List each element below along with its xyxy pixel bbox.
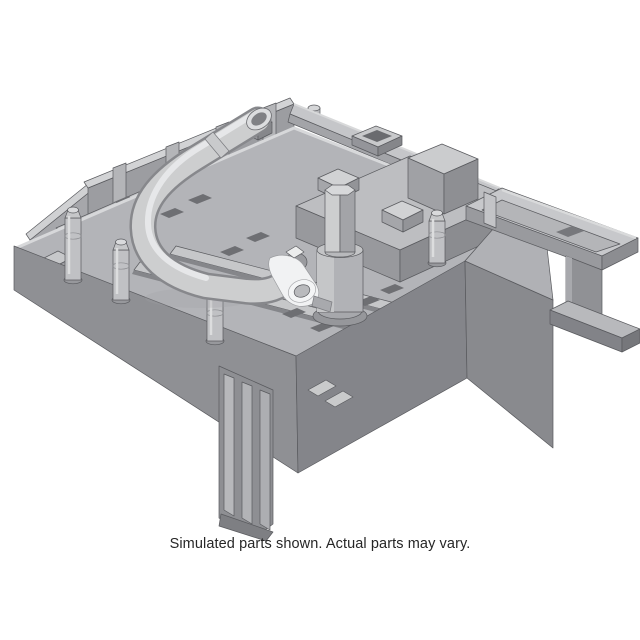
front-mounting-leg	[219, 366, 273, 541]
disclaimer-caption: Simulated parts shown. Actual parts may …	[0, 536, 640, 552]
product-image-page: Simulated parts shown. Actual parts may …	[0, 0, 640, 640]
